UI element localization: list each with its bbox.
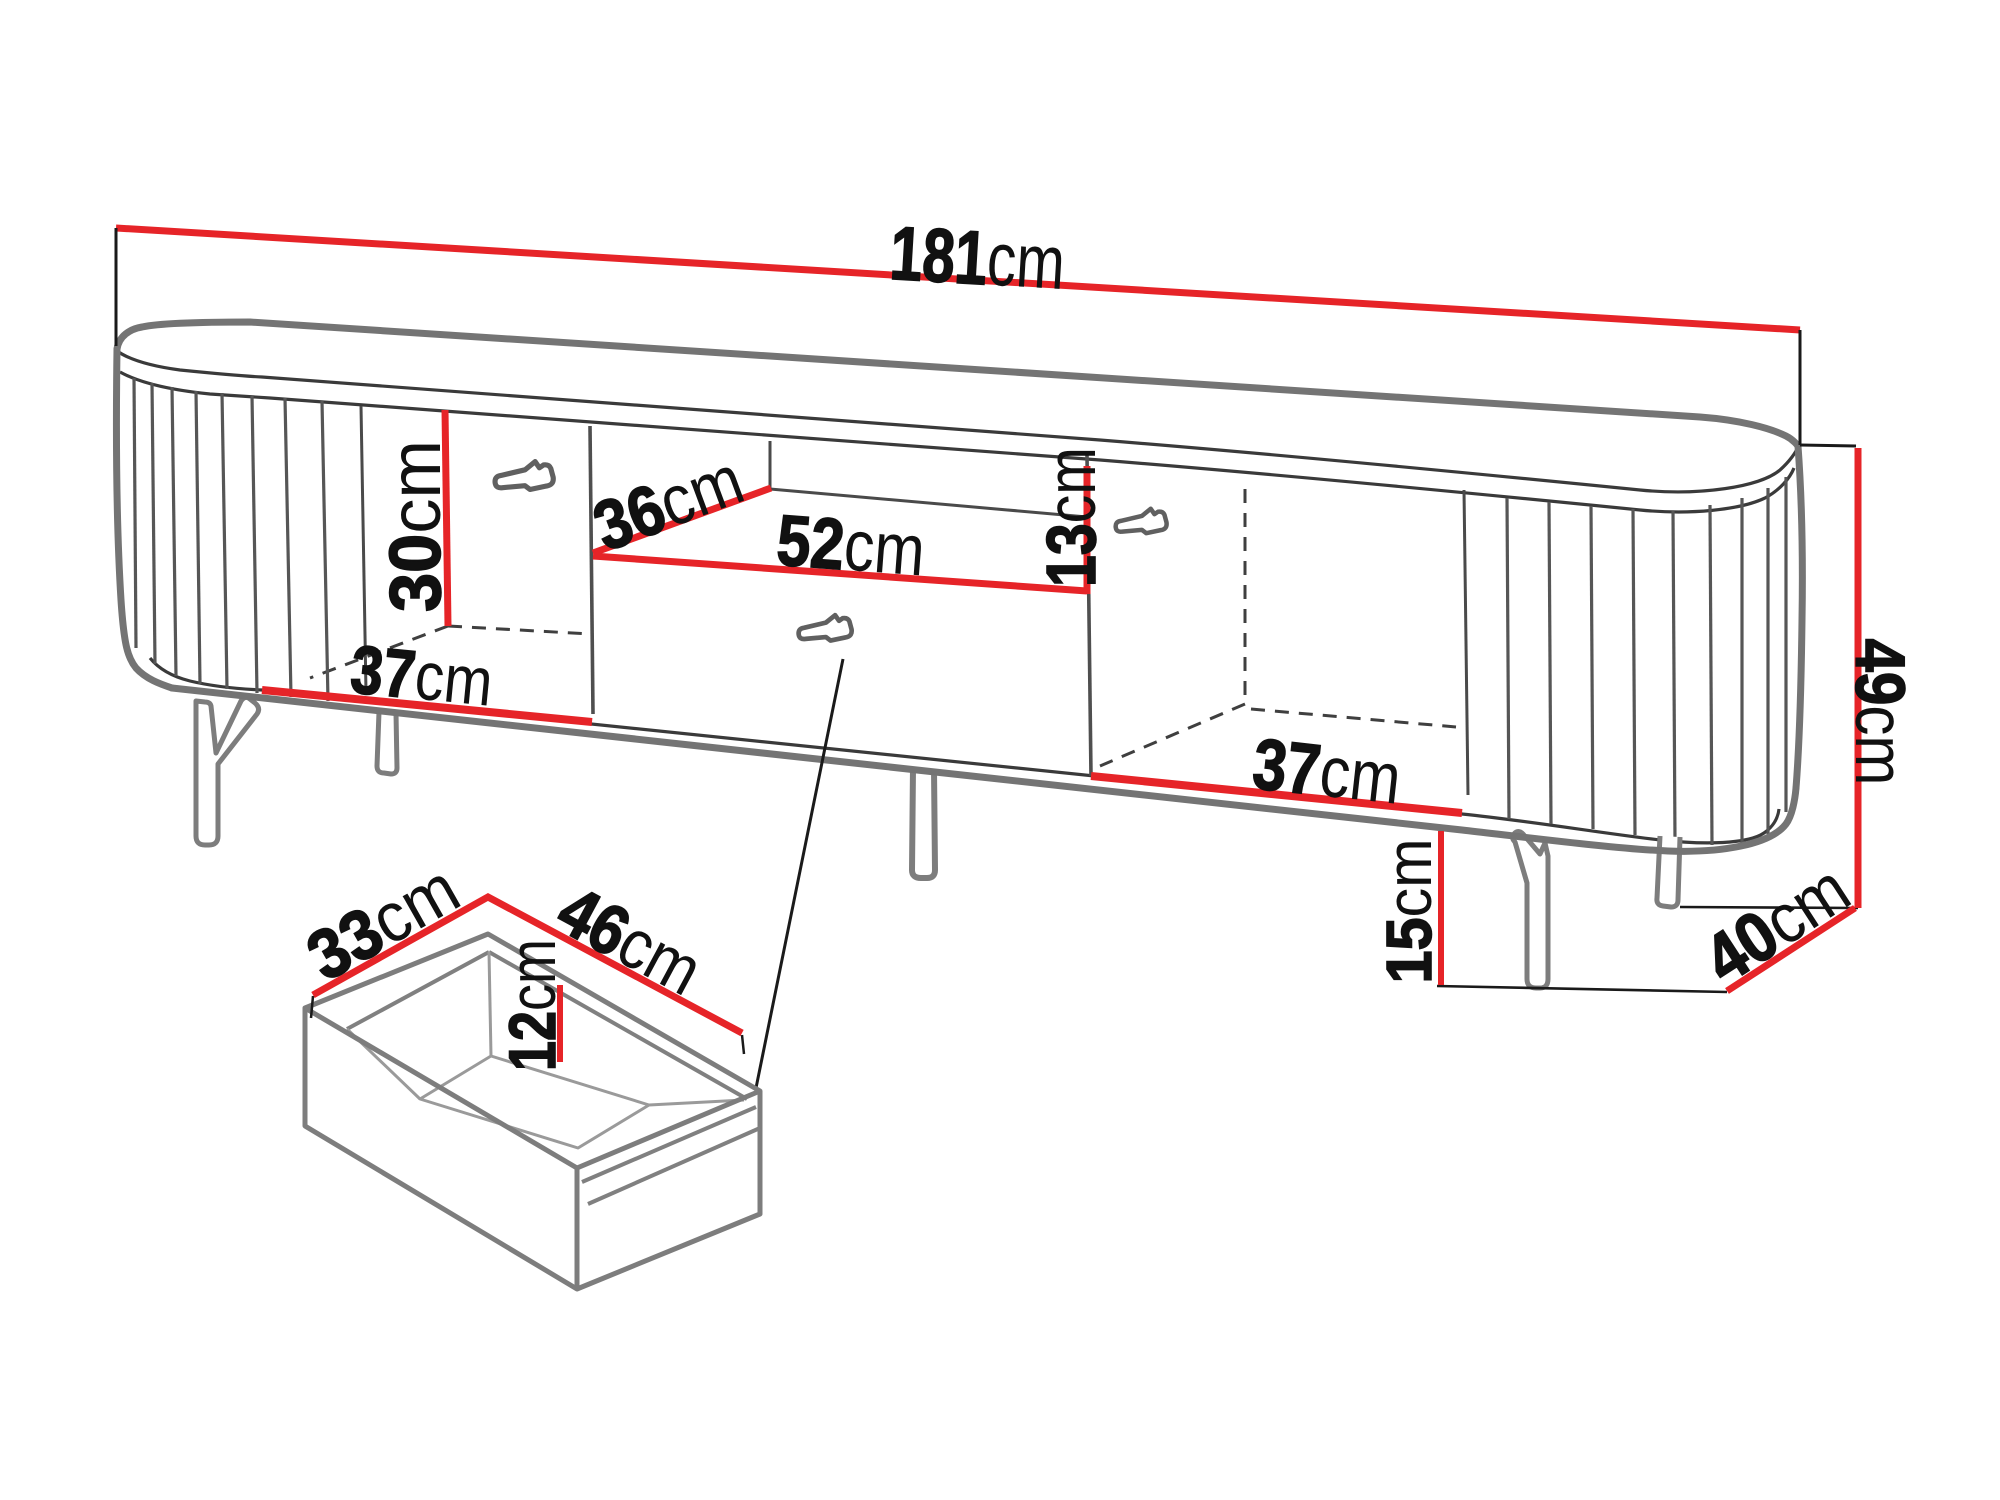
svg-text:13cm: 13cm [1032,447,1110,587]
svg-text:30cm: 30cm [376,440,456,612]
svg-text:49cm: 49cm [1841,639,1919,786]
svg-text:15cm: 15cm [1373,839,1445,984]
svg-text:37cm: 37cm [347,631,496,720]
svg-text:37cm: 37cm [1249,724,1405,820]
svg-text:52cm: 52cm [774,501,928,592]
svg-text:181cm: 181cm [888,211,1068,306]
svg-text:12cm: 12cm [495,939,569,1071]
